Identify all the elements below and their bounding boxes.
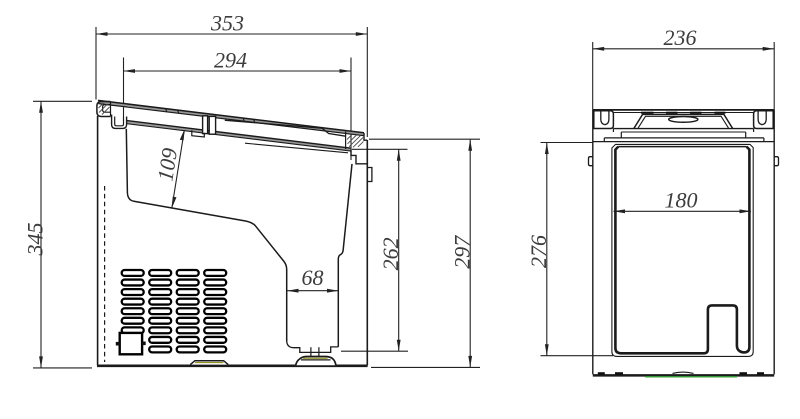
svg-text:180: 180	[665, 188, 698, 213]
svg-text:345: 345	[23, 223, 48, 257]
svg-text:353: 353	[210, 11, 244, 36]
svg-text:262: 262	[378, 237, 403, 270]
svg-text:297: 297	[450, 235, 475, 269]
svg-text:276: 276	[526, 235, 551, 268]
svg-text:236: 236	[664, 25, 697, 50]
svg-text:68: 68	[302, 265, 324, 290]
svg-text:294: 294	[214, 48, 247, 73]
svg-text:109: 109	[152, 146, 182, 183]
